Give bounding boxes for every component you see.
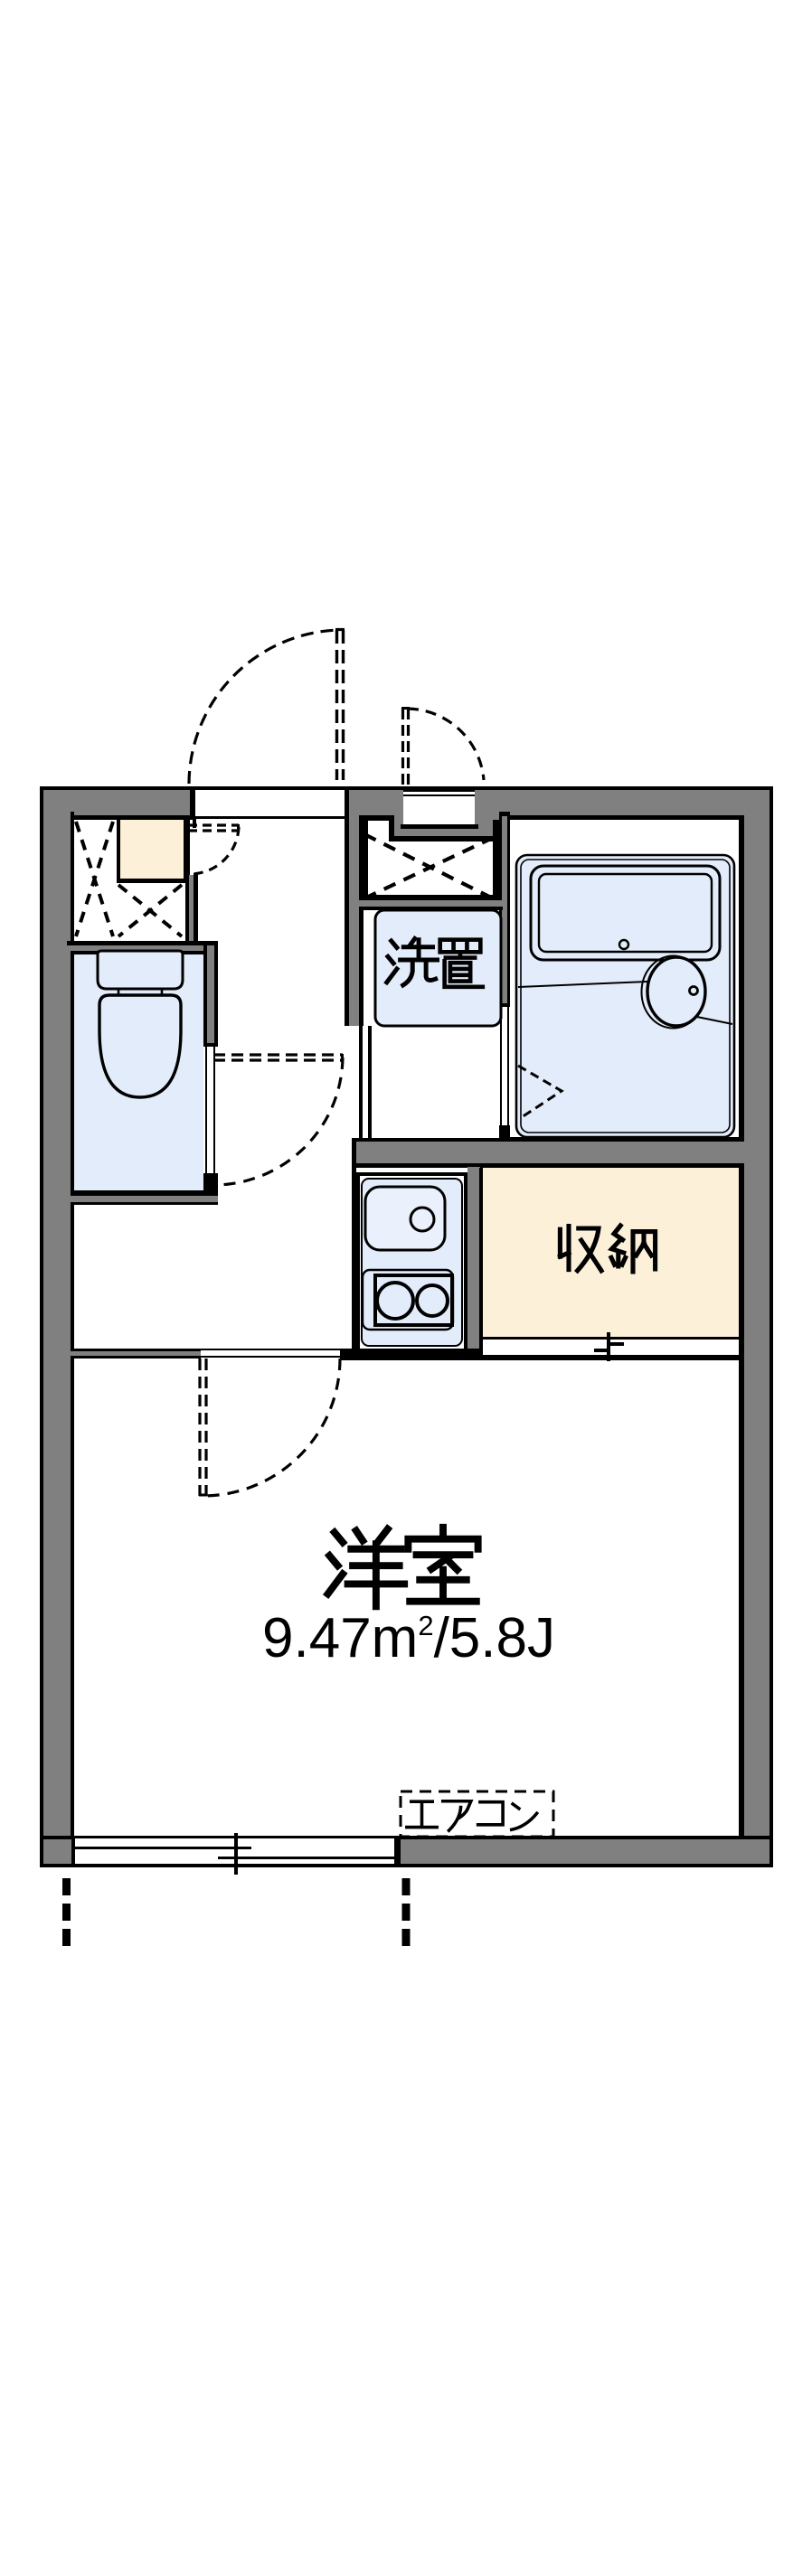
svg-text:9.47m2/5.8J: 9.47m2/5.8J bbox=[262, 1607, 555, 1669]
